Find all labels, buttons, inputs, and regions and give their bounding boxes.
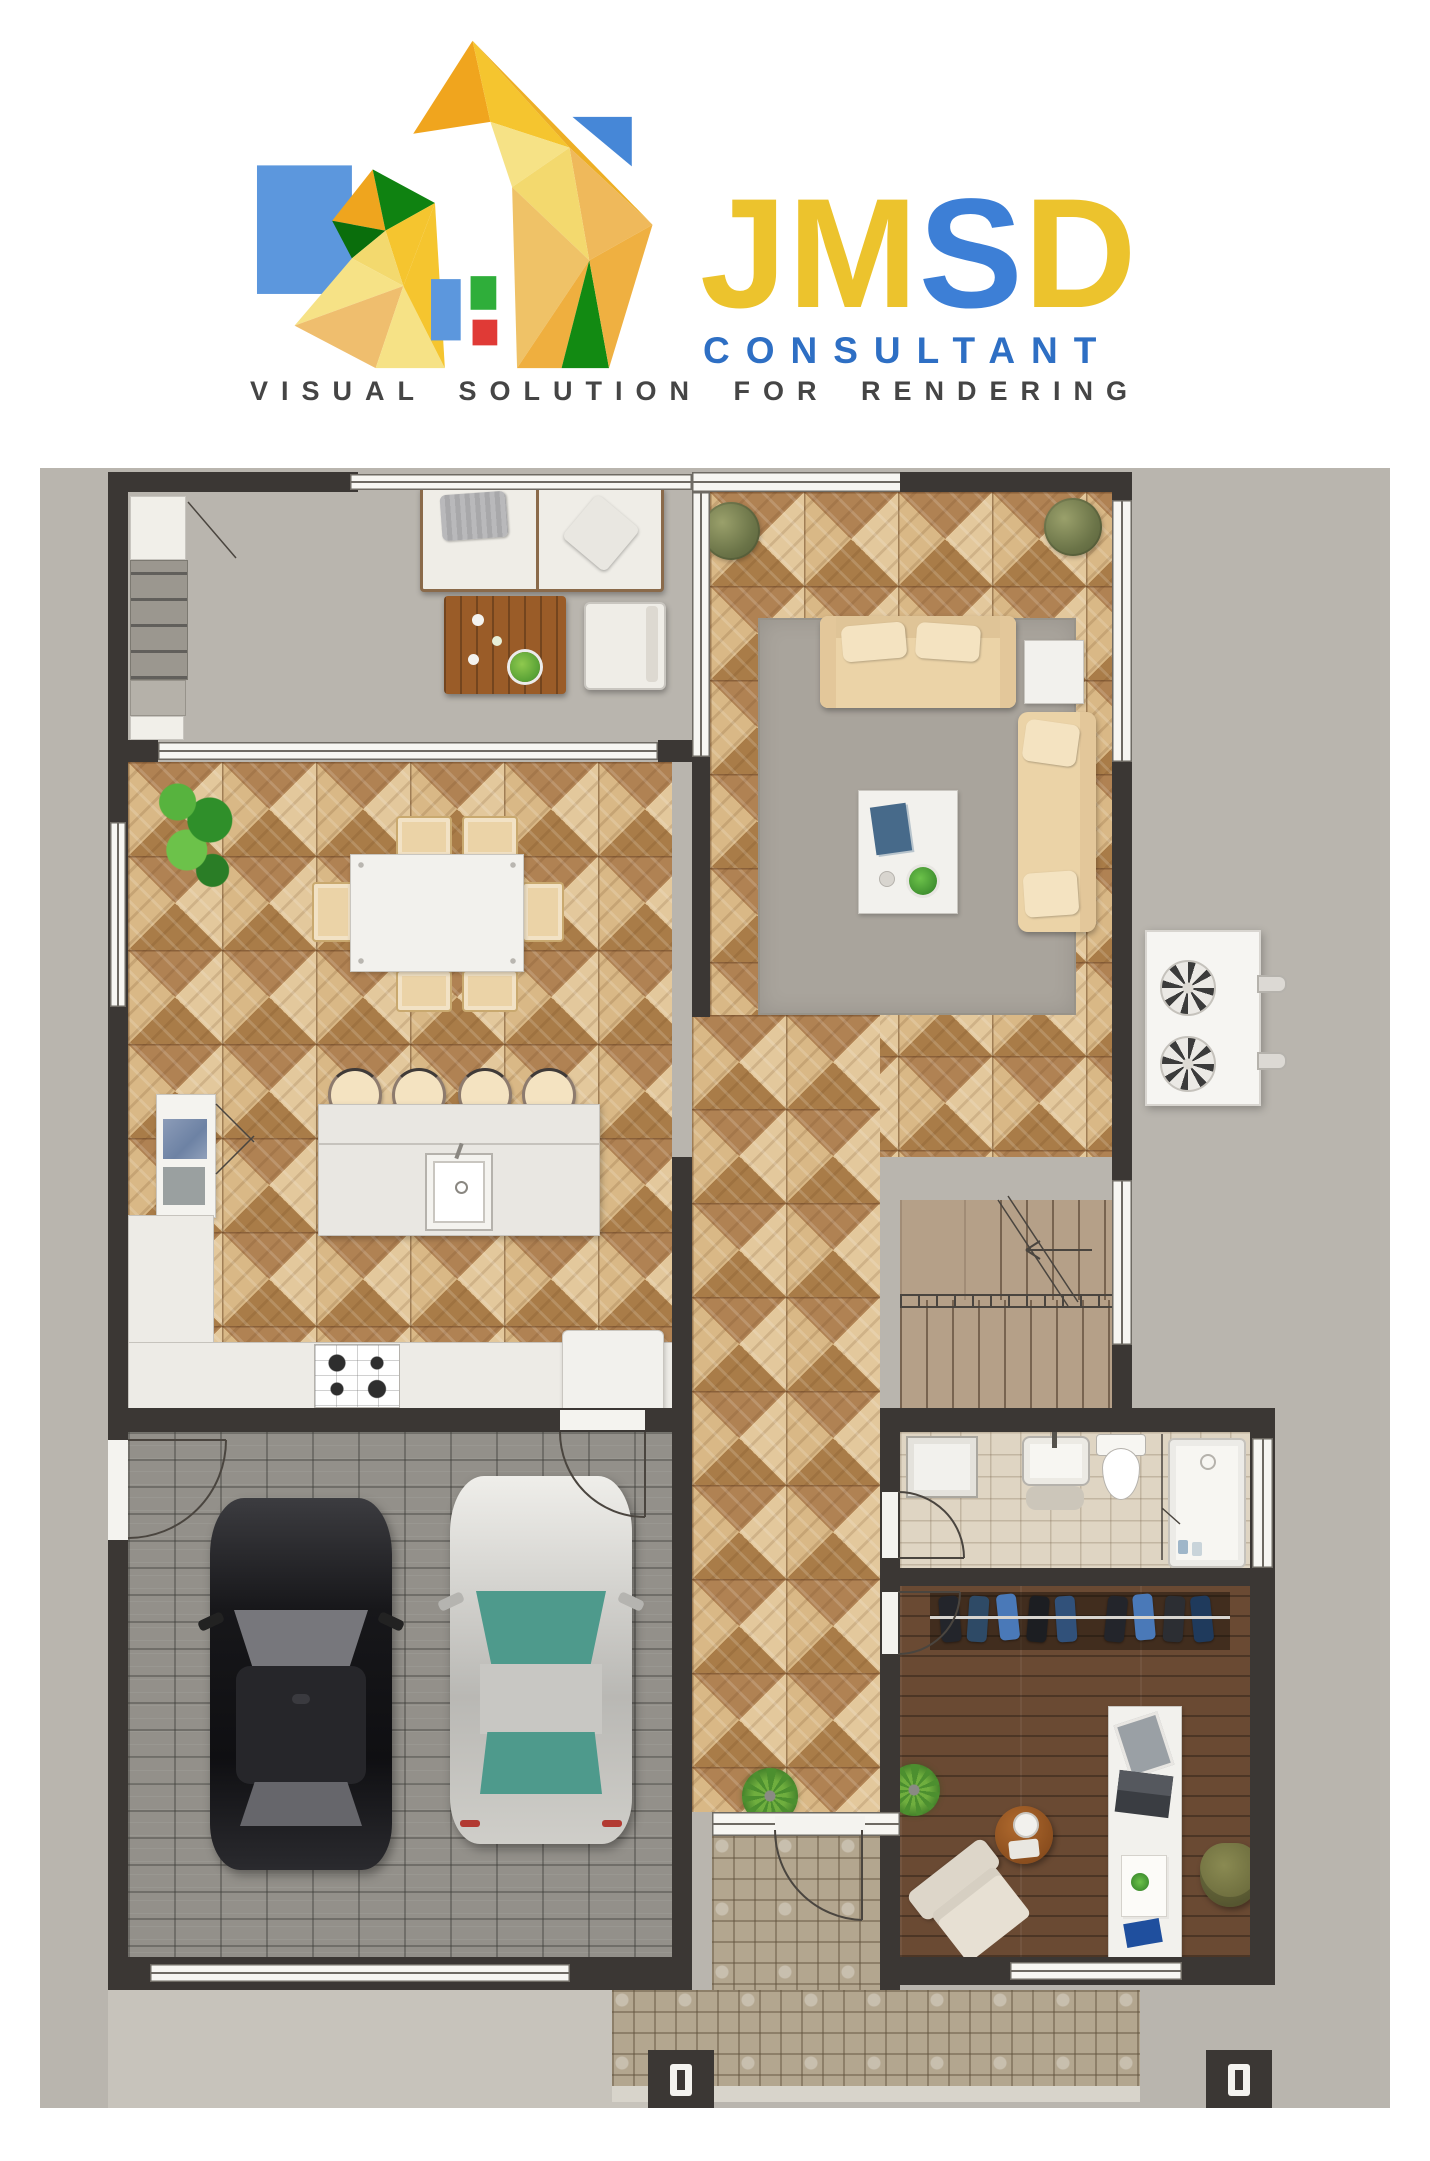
- entry-porch-path: [712, 1836, 900, 1990]
- outdoor-console: [128, 496, 186, 738]
- bathroom-door-opening: [882, 1492, 898, 1558]
- kitchen-island: [318, 1104, 600, 1236]
- ac-pipe: [1257, 1052, 1287, 1070]
- brand-letter-m: M: [788, 167, 919, 341]
- car-roof: [480, 1664, 602, 1734]
- ac-pipe: [1257, 975, 1287, 993]
- living-dining-wall: [692, 757, 710, 1017]
- dining-table: [350, 854, 524, 972]
- stair-void: [900, 1157, 1112, 1200]
- table-greens: [510, 652, 540, 682]
- wall-segment: [108, 472, 358, 492]
- storage-cabinet: [906, 1436, 978, 1498]
- left-exterior-wall: [108, 472, 128, 1990]
- brand-subtitle: CONSULTANT: [703, 330, 1112, 372]
- chaise-pillow: [1021, 718, 1080, 767]
- vanity-sink: [1022, 1436, 1090, 1486]
- porch-pillar: [1206, 2050, 1272, 2108]
- patio-console-line: [188, 502, 236, 558]
- garage-right-wall: [672, 1432, 692, 1990]
- island-sink: [425, 1153, 493, 1231]
- wall-segment: [900, 472, 1132, 492]
- sofa-pillow: [915, 622, 981, 662]
- desk-plant: [1131, 1873, 1149, 1891]
- stair-window: [1112, 1180, 1132, 1345]
- floor-plan: [40, 468, 1390, 2108]
- black-car: [210, 1498, 392, 1870]
- logo-window-green: [471, 276, 497, 310]
- bath-closet-divider: [900, 1568, 1250, 1586]
- dining-plant: [150, 772, 242, 892]
- brand-letter-j: J: [700, 167, 788, 341]
- toilet: [1096, 1434, 1144, 1500]
- shampoo-bottles: [1178, 1540, 1188, 1554]
- logo-window-blue: [431, 279, 461, 340]
- cooktop: [314, 1344, 400, 1408]
- fridge: [156, 1094, 216, 1218]
- stair-upper-flight: [1000, 1200, 1112, 1300]
- right-wall-mid: [1112, 762, 1132, 1180]
- garage-window: [150, 1964, 570, 1982]
- car-rear-window: [480, 1732, 602, 1794]
- dining-left-window: [110, 822, 126, 1007]
- outdoor-pillow-white: [562, 494, 641, 573]
- office-desk: [1108, 1706, 1182, 1958]
- faucet: [1052, 1430, 1057, 1448]
- sofa-arm-left: [820, 616, 836, 708]
- dining-chair: [396, 970, 452, 1012]
- jmsd-house-logo-icon: [255, 26, 700, 374]
- desk-photo-frame: [1113, 1711, 1174, 1778]
- car-rear-window: [240, 1782, 362, 1826]
- patio-living-window: [692, 492, 710, 757]
- kitchen-right-wall: [672, 1157, 692, 1432]
- garage-door-opening: [560, 1410, 645, 1430]
- closet-rail: [930, 1616, 1230, 1619]
- stair-railing: [900, 1294, 1112, 1308]
- car-taillight: [602, 1820, 622, 1827]
- fridge-glass: [163, 1119, 207, 1159]
- brand-letter-s: S: [919, 167, 1024, 341]
- sofa-pillow: [841, 621, 908, 662]
- wall-segment: [658, 740, 694, 762]
- driveway: [108, 1990, 672, 2108]
- car-roof: [236, 1666, 366, 1784]
- outdoor-chair: [584, 602, 666, 690]
- brand-letter-d: D: [1024, 167, 1138, 341]
- desk-laptop: [1115, 1770, 1174, 1818]
- kitchen-appliance: [562, 1330, 664, 1410]
- closet-door-opening: [882, 1592, 898, 1654]
- table-plant: [909, 867, 937, 895]
- right-wall-top: [1112, 472, 1132, 500]
- corner-plant-left: [702, 502, 760, 560]
- dining-chair: [462, 816, 518, 858]
- shower-tray: [1168, 1438, 1246, 1568]
- bathroom-top-wall: [880, 1408, 1275, 1432]
- dining-chair: [522, 882, 564, 942]
- garage-side-door: [108, 1440, 128, 1540]
- brand-wordmark: JMSD: [700, 176, 1137, 332]
- stair-lower-flight: [900, 1300, 1112, 1408]
- brand-tagline: VISUAL SOLUTION FOR RENDERING: [250, 376, 1140, 407]
- ac-fan: [1160, 1036, 1216, 1092]
- porch-pillar: [648, 2050, 714, 2108]
- car-windshield: [476, 1591, 606, 1666]
- patio-dining-window: [158, 742, 658, 760]
- shower-drain: [1200, 1454, 1216, 1470]
- coffee-table: [858, 790, 958, 914]
- wall-segment: [128, 740, 158, 762]
- toilet-bowl: [1102, 1448, 1140, 1500]
- living-top-window: [692, 472, 904, 492]
- dining-chair: [312, 882, 354, 942]
- round-side-table: [995, 1806, 1053, 1864]
- sofa-arm-right: [1000, 616, 1016, 708]
- logo-window-red: [473, 320, 498, 346]
- living-sofa: [820, 616, 1016, 708]
- dining-chair: [462, 970, 518, 1012]
- entry-door-opening: [775, 1816, 865, 1834]
- table-bowl: [879, 871, 895, 887]
- corner-plant-right: [1044, 498, 1102, 556]
- chaise-pillow: [1023, 870, 1080, 918]
- books-stack: [870, 803, 912, 856]
- ac-fan: [1160, 960, 1216, 1016]
- outdoor-pillow-gray: [439, 491, 508, 541]
- table-lamp: [1013, 1812, 1039, 1838]
- dining-chair: [396, 816, 452, 858]
- desk-notebook: [1123, 1918, 1163, 1948]
- chaise-lounge: [1018, 712, 1096, 932]
- patio-railing: [350, 474, 692, 490]
- bath-mat: [1026, 1486, 1084, 1510]
- hallway-foyer-floor: [692, 1015, 880, 1812]
- side-table: [1024, 640, 1084, 704]
- faucet: [455, 1181, 468, 1194]
- car-windshield: [234, 1610, 368, 1668]
- silver-car: [450, 1476, 632, 1844]
- outdoor-coffee-table: [444, 596, 566, 694]
- outdoor-grill: [130, 560, 188, 680]
- office-window: [1010, 1962, 1182, 1980]
- car-taillight: [460, 1820, 480, 1827]
- outdoor-sofa: [420, 486, 664, 592]
- shower-window: [1252, 1438, 1273, 1568]
- stair-landing: [900, 1200, 1000, 1300]
- living-right-window: [1112, 500, 1132, 762]
- chaise-arm: [1080, 712, 1096, 932]
